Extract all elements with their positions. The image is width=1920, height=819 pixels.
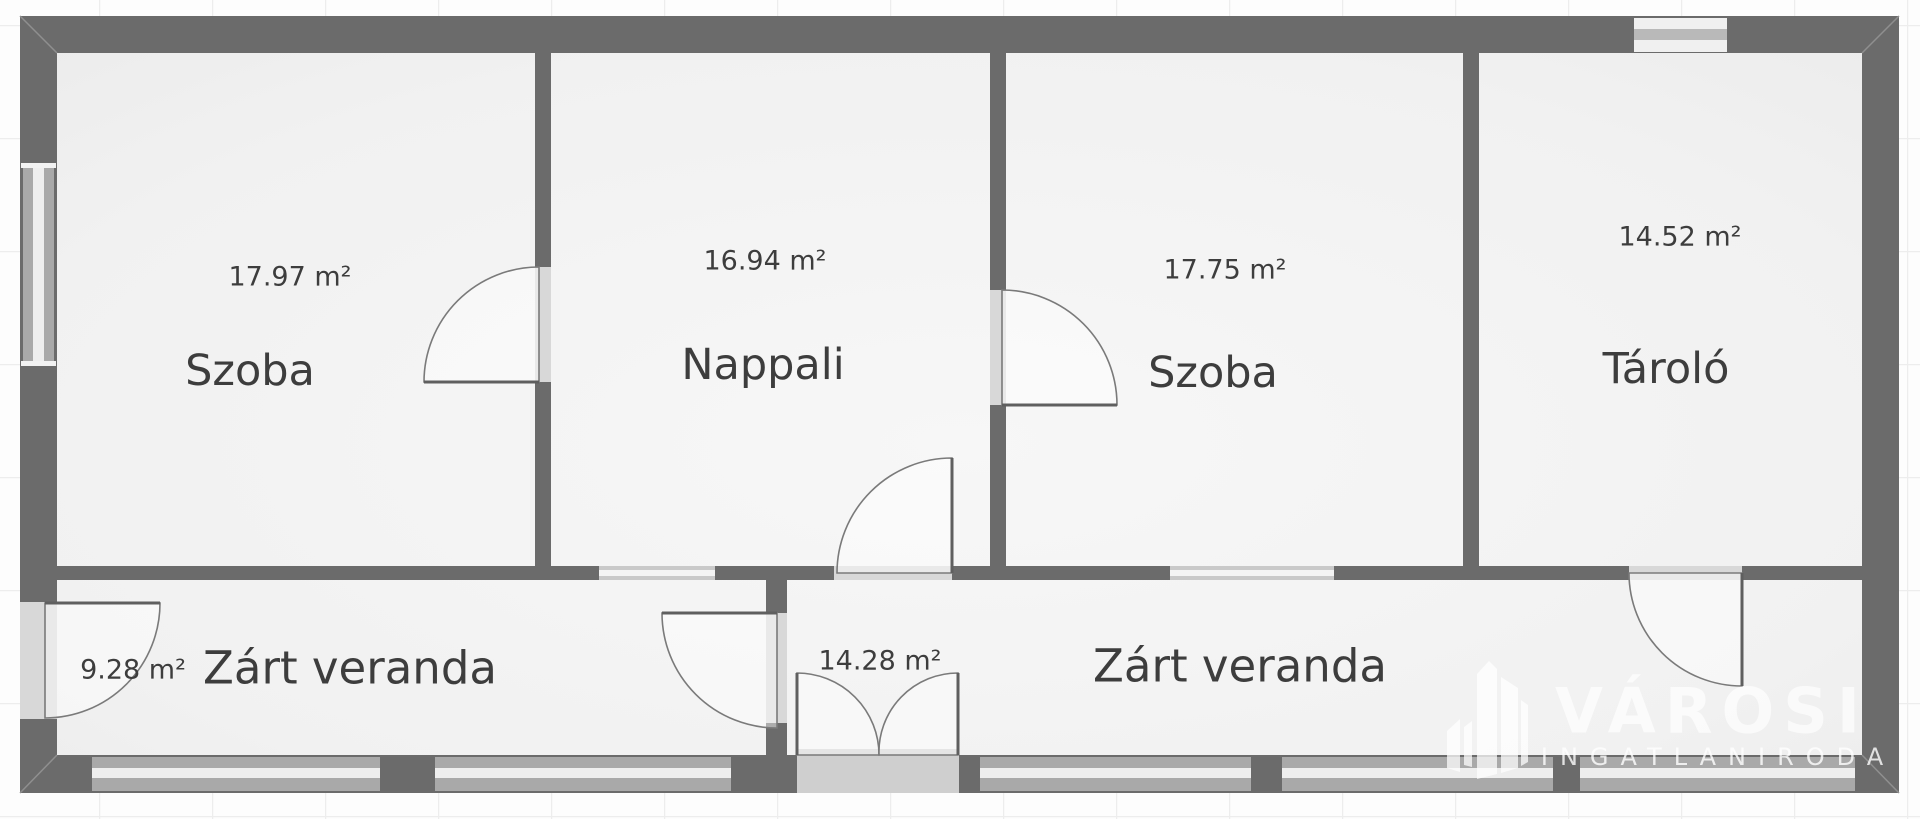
window-bottom-3-glass: [980, 768, 1251, 778]
room-name-szoba1: Szoba: [185, 346, 315, 396]
room-name-veranda-right: Zárt veranda: [1093, 640, 1387, 693]
buildings-icon-tower-3: [1477, 661, 1497, 779]
buildings-icon-tower-5: [1521, 700, 1528, 766]
wall-top: [20, 16, 1899, 53]
floor-plan-canvas: 17.97 m² Szoba 16.94 m² Nappali 17.75 m²…: [0, 0, 1920, 819]
room-name-nappali: Nappali: [681, 340, 844, 390]
window-top-wall-glass: [1634, 29, 1727, 40]
wall-horizontal-veranda: [57, 566, 1862, 580]
window-left-cap-bottom: [21, 361, 56, 366]
wall-szoba2-tarolo: [1463, 53, 1479, 580]
watermark-tagline-text: INGATLANIRODA: [1541, 743, 1895, 771]
window-left-wall-glass: [33, 168, 44, 361]
area-label-veranda-left: 9.28 m²: [80, 655, 186, 686]
buildings-icon-tower-2: [1464, 721, 1472, 767]
area-label-tarolo: 14.52 m²: [1618, 222, 1741, 253]
window-veranda-nappali-glass: [599, 570, 715, 576]
room-name-veranda-left: Zárt veranda: [203, 642, 497, 695]
room-name-szoba2: Szoba: [1148, 348, 1278, 398]
area-label-nappali: 16.94 m²: [703, 246, 826, 277]
watermark-brand-text: VÁROSI: [1555, 675, 1869, 748]
area-label-szoba2: 17.75 m²: [1163, 255, 1286, 286]
floor-plan-image: 17.97 m² Szoba 16.94 m² Nappali 17.75 m²…: [0, 0, 1920, 819]
window-bottom-2-glass: [435, 768, 731, 778]
room-name-tarolo: Tároló: [1602, 344, 1730, 394]
area-label-szoba1: 17.97 m²: [228, 262, 351, 293]
window-bottom-1-glass: [92, 768, 380, 778]
window-veranda-szoba2-glass: [1170, 570, 1334, 576]
window-left-cap-top: [21, 163, 56, 168]
buildings-icon-tower-4: [1501, 677, 1518, 773]
area-label-veranda-right: 14.28 m²: [818, 646, 941, 677]
